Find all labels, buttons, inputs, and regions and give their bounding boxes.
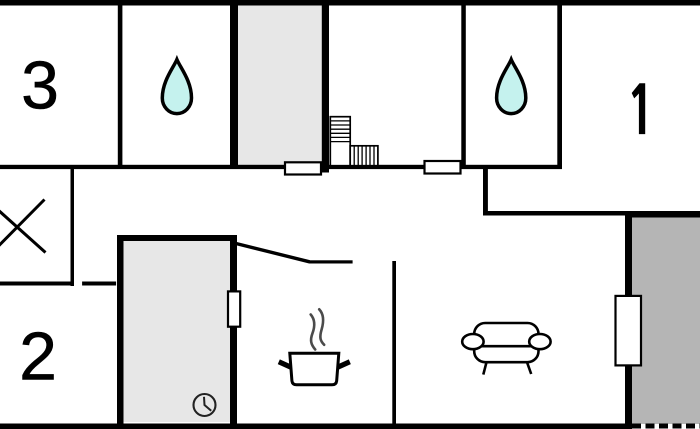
- svg-text:2: 2: [19, 319, 57, 395]
- svg-text:3: 3: [21, 48, 59, 124]
